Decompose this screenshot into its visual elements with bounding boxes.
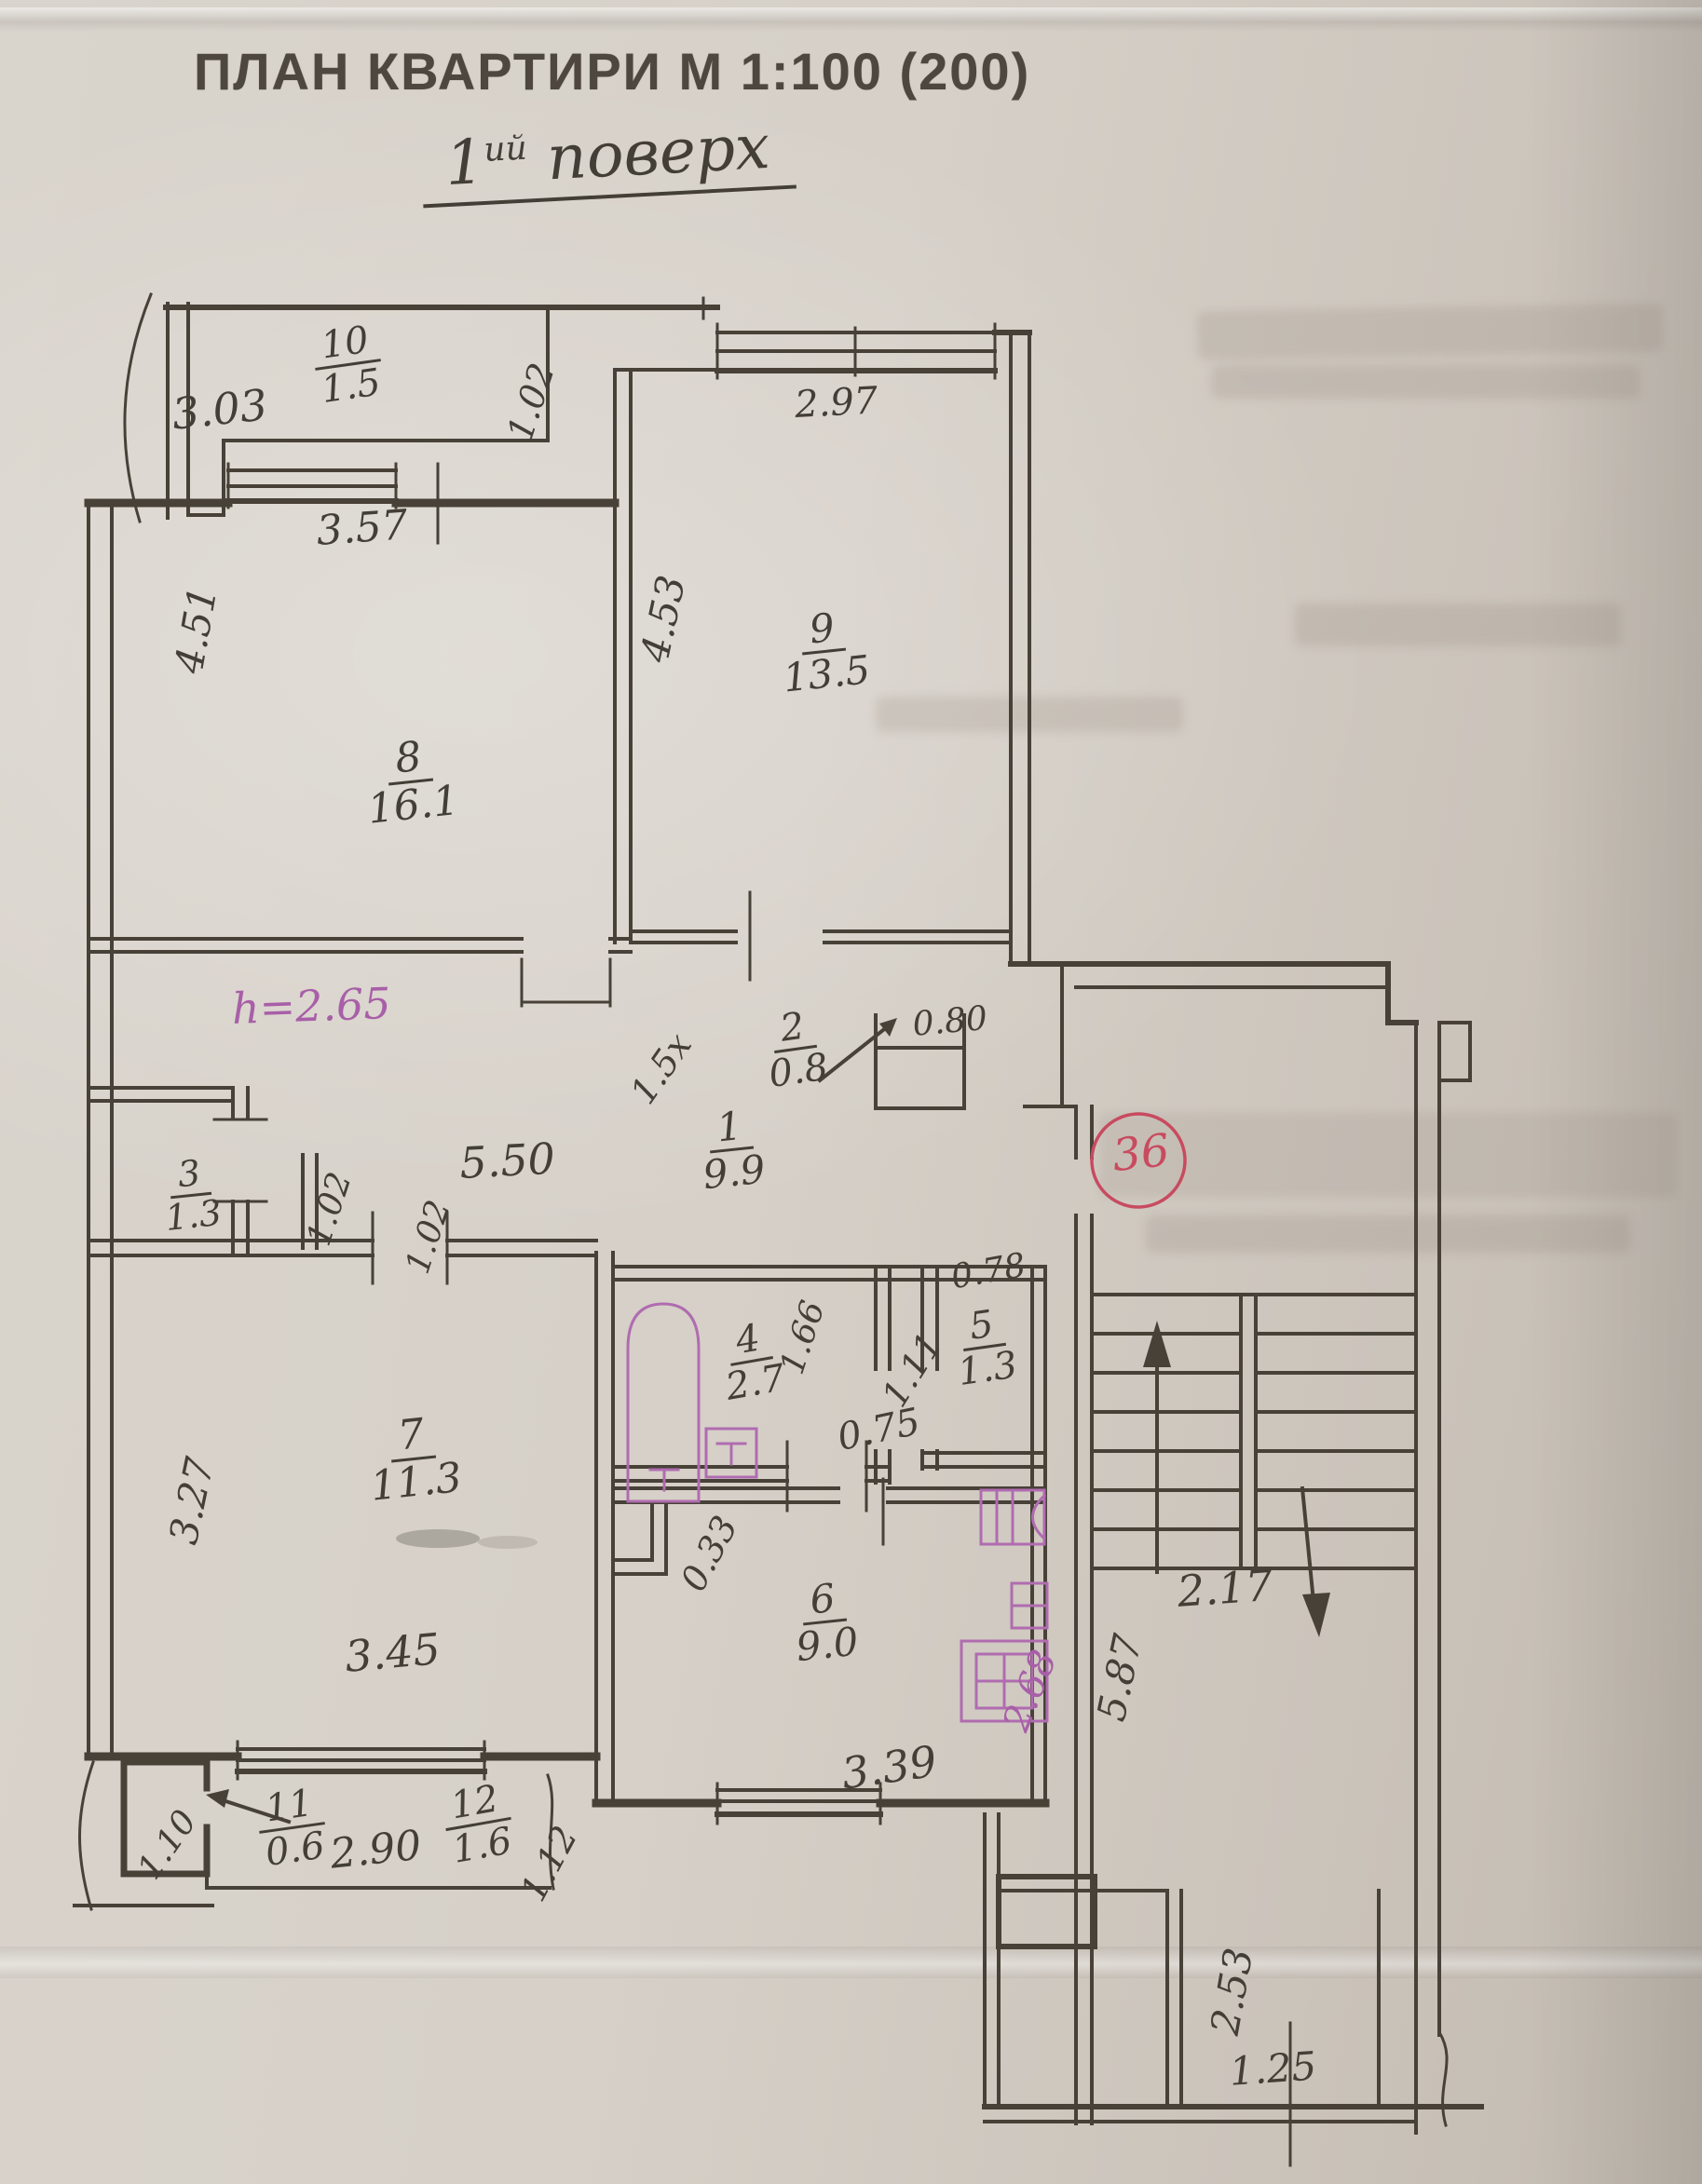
room11-arrowhead <box>206 1789 229 1808</box>
dim-room7-width: 3.45 <box>343 1623 443 1682</box>
pencil-smudge <box>478 1536 538 1549</box>
room-1-number: 1 <box>705 1105 754 1154</box>
room-1-area: 9.9 <box>701 1148 767 1198</box>
room-9-area: 13.5 <box>782 648 873 700</box>
room-label-9: 913.5 <box>776 601 872 700</box>
stairs-down-arrowhead <box>1302 1593 1330 1637</box>
room-8-number: 8 <box>384 735 433 786</box>
bath-sink-icon <box>706 1429 756 1477</box>
dim-vestibule-width: 1.25 <box>1228 2042 1318 2094</box>
dim-room9-width: 2.97 <box>794 379 878 427</box>
apartment-number-stamp: 36 <box>1105 1123 1177 1182</box>
room-label-10: 101.5 <box>309 318 387 412</box>
dim-corridor-length: 5.50 <box>458 1133 556 1188</box>
dim-room8-window: 3.57 <box>315 501 409 555</box>
room-2-area: 0.8 <box>767 1047 831 1095</box>
room-7-area: 11.3 <box>369 1456 464 1510</box>
room-6-number: 6 <box>798 1577 847 1626</box>
room-11-area: 0.6 <box>260 1825 331 1874</box>
kitchen-sink-icon <box>981 1490 1044 1544</box>
room-3-area: 1.3 <box>163 1194 223 1239</box>
room-label-5: 51.3 <box>949 1300 1020 1393</box>
room-2-number: 2 <box>769 1005 816 1053</box>
room-9-number: 9 <box>798 606 847 656</box>
room-8-area: 16.1 <box>366 779 461 833</box>
closet2-arrowhead <box>879 1018 897 1037</box>
room-5-area: 1.3 <box>956 1345 1020 1393</box>
dim-stair-width: 2.17 <box>1176 1560 1274 1617</box>
bathtub-icon <box>628 1304 699 1501</box>
room-label-2: 20.8 <box>760 1002 831 1095</box>
dimension-ticks <box>214 298 1290 2165</box>
walls-thick <box>89 503 1045 1803</box>
room-label-3: 31.3 <box>159 1150 224 1239</box>
room-5-number: 5 <box>958 1303 1005 1351</box>
ceiling-height-note: h=2.65 <box>231 978 391 1034</box>
room-3-number: 3 <box>167 1154 212 1199</box>
room-6-area: 9.0 <box>794 1621 860 1670</box>
pencil-smudge <box>396 1529 480 1548</box>
stove-icon <box>1012 1583 1047 1628</box>
dim-balcony10-length: 3.03 <box>170 379 270 439</box>
room-label-7: 711.3 <box>363 1406 464 1510</box>
room-label-6: 69.0 <box>789 1573 861 1670</box>
room-label-8: 816.1 <box>361 729 461 833</box>
room-10-area: 1.5 <box>316 361 387 411</box>
dim-balcony12-length: 2.90 <box>328 1822 424 1879</box>
room-label-1: 19.9 <box>696 1101 768 1198</box>
dim-closet2-width: 0.80 <box>911 999 988 1044</box>
floor-plan-drawing <box>0 0 1702 2184</box>
scanned-floor-plan-page: ПЛАН КВАРТИРИ М 1:100 (200) 1ий поверх <box>0 0 1702 2184</box>
room-7-number: 7 <box>387 1412 436 1463</box>
room-label-11: 110.6 <box>253 1781 331 1875</box>
stairs-up-arrowhead <box>1143 1321 1171 1367</box>
